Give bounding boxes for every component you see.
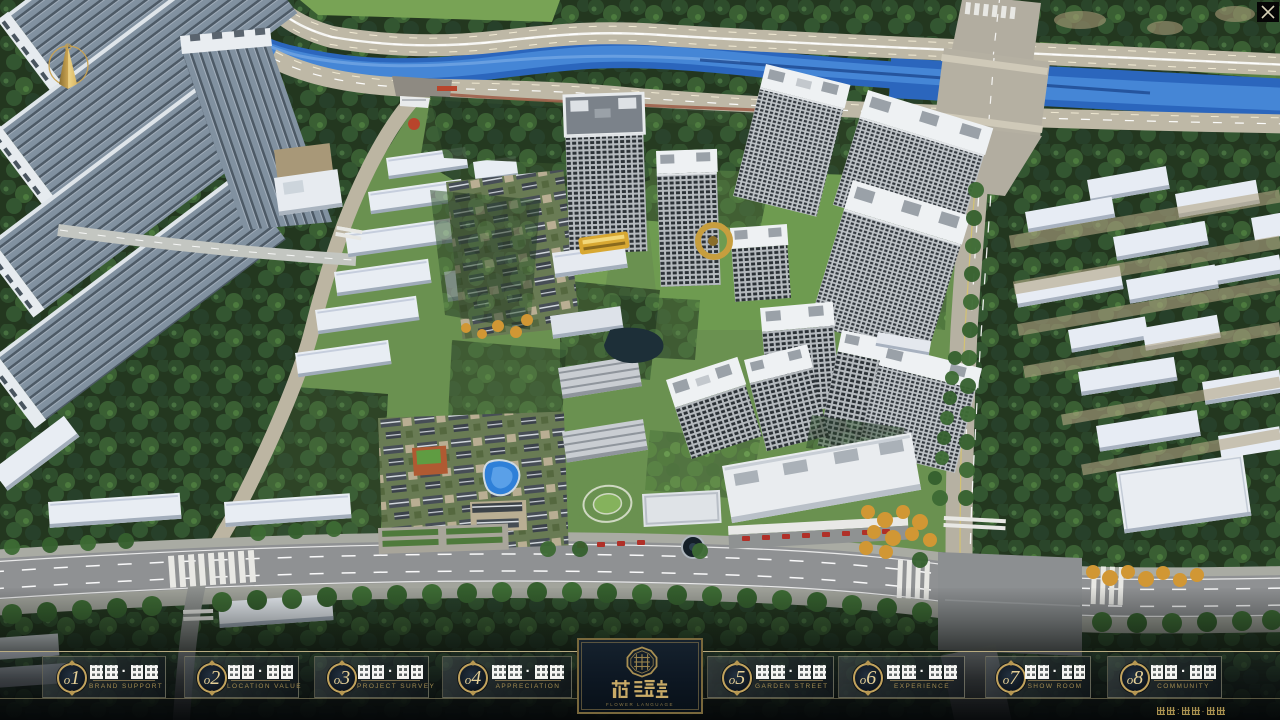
svg-text:FLOWER LANGUAGE: FLOWER LANGUAGE: [606, 702, 674, 707]
